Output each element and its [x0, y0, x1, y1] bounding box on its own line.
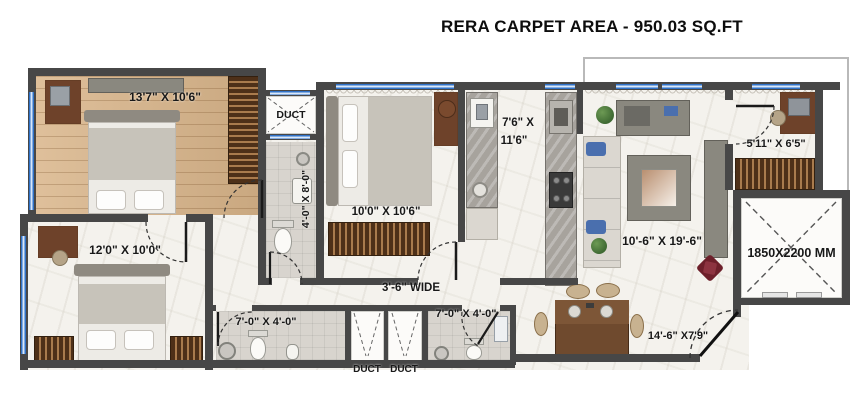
room-label-bath1: 4'-0" X 8'-0"	[300, 153, 312, 245]
bottom-crop-mask	[0, 372, 853, 414]
room-label-bedroom2: 10'0" X 10'6"	[334, 206, 438, 218]
room-label-duct-top: DUCT	[264, 109, 318, 121]
room-label-kitchen-2: 11'6"	[488, 135, 540, 147]
page-title: RERA CARPET AREA - 950.03 SQ.FT	[441, 17, 743, 37]
floor-plan: RERA CARPET AREA - 950.03 SQ.FT	[0, 0, 853, 414]
room-label-bedroom3: 12'0" X 10'0"	[70, 243, 180, 257]
room-label-bedroom1: 13'7" X 10'6"	[100, 90, 230, 104]
room-label-passage: 3'-6" WIDE	[364, 282, 458, 294]
room-label-bath3: 7'-0" X 4'-0"	[424, 308, 508, 320]
room-label-dining: 14'-6" X7'9"	[634, 330, 722, 342]
room-label-lift: 1850X2200 MM	[741, 246, 842, 260]
room-label-kitchen-1: 7'6" X	[492, 117, 544, 129]
room-label-living: 10'-6" X 19'-6"	[604, 234, 720, 248]
room-label-bath2: 7'-0" X 4'-0"	[224, 316, 308, 328]
room-label-study: 5'11" X 6'5"	[734, 138, 818, 150]
